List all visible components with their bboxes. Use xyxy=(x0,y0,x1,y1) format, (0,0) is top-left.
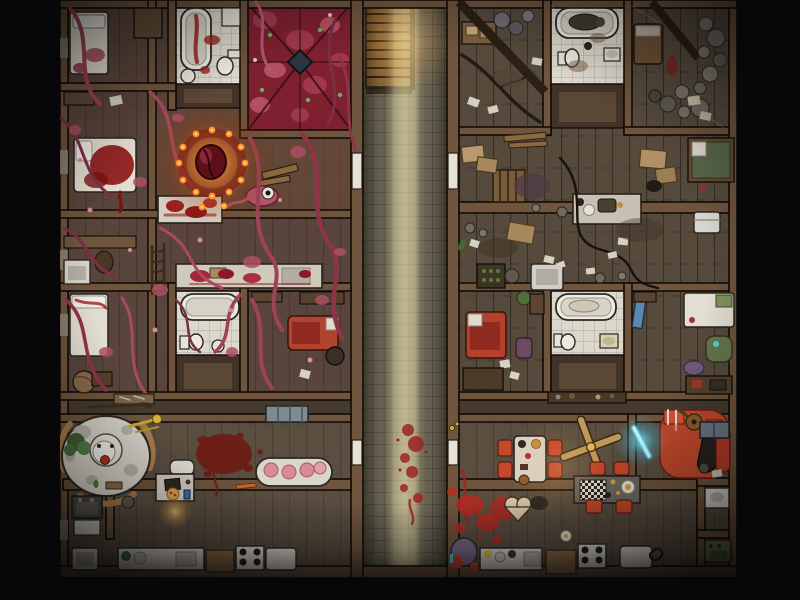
battle-map-canvas xyxy=(0,0,800,600)
battle-map-stage xyxy=(0,0,800,600)
vignette xyxy=(0,0,800,600)
frame-black-bottom xyxy=(0,578,800,600)
frame-black-left xyxy=(0,0,60,600)
frame-black-right xyxy=(737,0,800,600)
